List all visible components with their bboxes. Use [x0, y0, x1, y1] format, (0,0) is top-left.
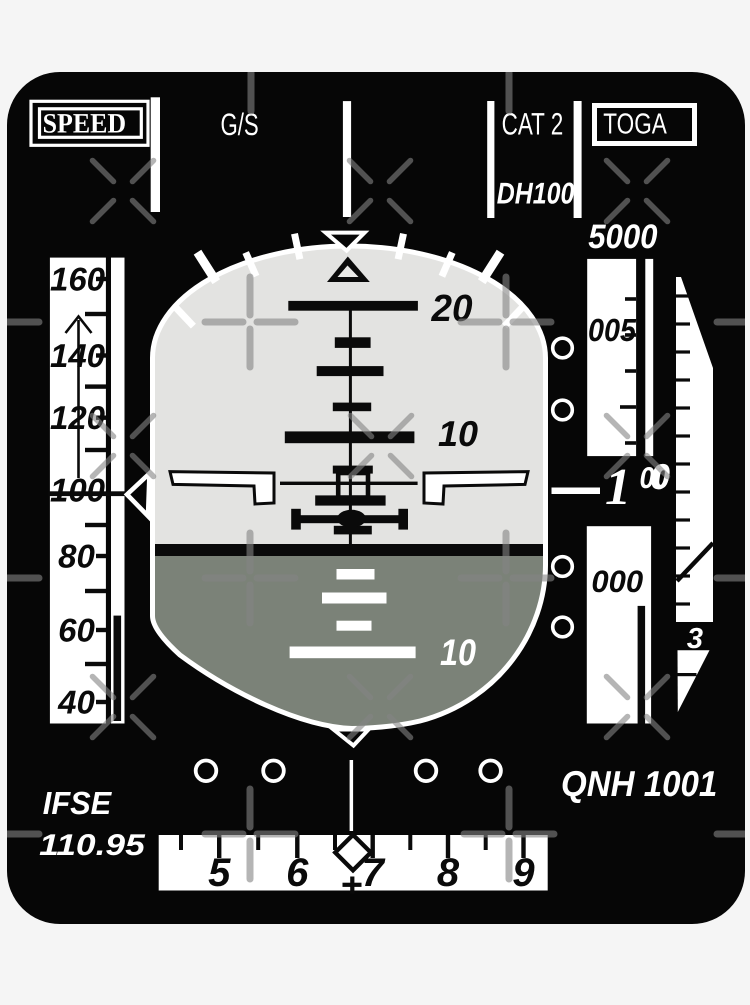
svg-text:10: 10: [440, 632, 476, 673]
svg-text:6: 6: [286, 851, 309, 895]
svg-text:8: 8: [437, 851, 460, 895]
svg-text:80: 80: [58, 538, 95, 575]
svg-text:000: 000: [591, 564, 643, 599]
svg-text:60: 60: [58, 612, 95, 649]
svg-text:160: 160: [50, 261, 106, 298]
svg-text:005: 005: [588, 312, 637, 348]
svg-text:9: 9: [512, 851, 535, 895]
svg-text:IFSE: IFSE: [43, 785, 113, 821]
svg-text:5000: 5000: [588, 218, 657, 256]
svg-text:QNH 1001: QNH 1001: [561, 763, 717, 804]
svg-text:110.95: 110.95: [39, 829, 146, 862]
svg-text:40: 40: [57, 684, 95, 721]
svg-text:10: 10: [438, 413, 478, 454]
svg-text:DH100: DH100: [497, 178, 575, 211]
svg-text:TOGA: TOGA: [603, 109, 667, 141]
svg-text:SPEED: SPEED: [43, 109, 127, 140]
svg-text:5: 5: [208, 851, 231, 895]
